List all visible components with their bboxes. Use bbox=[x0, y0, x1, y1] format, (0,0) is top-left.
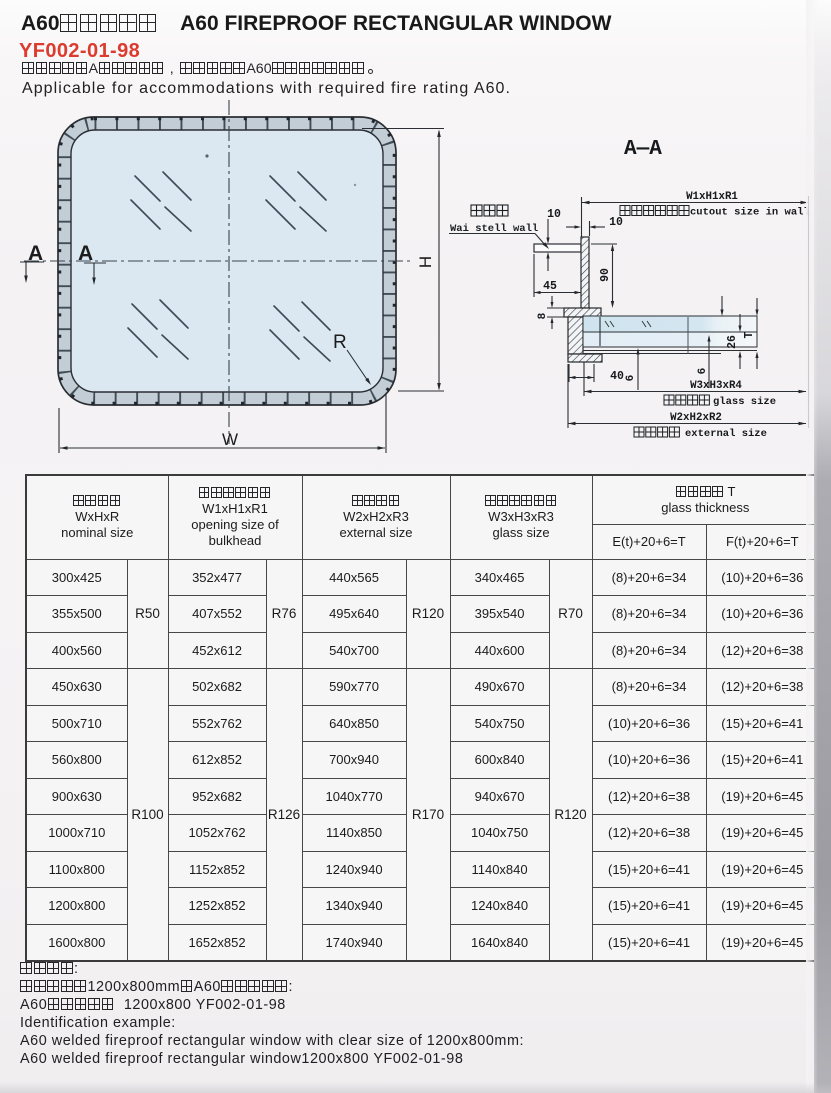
svg-text:45: 45 bbox=[543, 280, 557, 293]
svg-text:8: 8 bbox=[537, 312, 549, 319]
svg-text:10: 10 bbox=[609, 216, 623, 229]
svg-text:W2xH2xR2: W2xH2xR2 bbox=[670, 412, 722, 424]
svg-text:R: R bbox=[333, 332, 347, 353]
svg-text:W1xH1xR1: W1xH1xR1 bbox=[686, 191, 738, 203]
svg-text:A: A bbox=[78, 242, 93, 265]
svg-text:H: H bbox=[416, 256, 435, 268]
svg-text:external size: external size bbox=[685, 428, 767, 440]
svg-text:T: T bbox=[743, 331, 756, 338]
svg-text:40: 40 bbox=[610, 370, 624, 383]
svg-text:cutout size in wall: cutout size in wall bbox=[690, 207, 810, 219]
svg-text:W3xH3xR4: W3xH3xR4 bbox=[690, 380, 742, 392]
svg-text:6: 6 bbox=[697, 368, 709, 375]
svg-text:90: 90 bbox=[599, 268, 612, 282]
svg-text:A—A: A—A bbox=[624, 138, 662, 161]
svg-text:6: 6 bbox=[625, 375, 637, 382]
svg-text:10: 10 bbox=[547, 208, 561, 221]
svg-text:glass size: glass size bbox=[713, 396, 776, 408]
svg-text:W: W bbox=[222, 430, 238, 449]
svg-text:26: 26 bbox=[726, 335, 739, 349]
